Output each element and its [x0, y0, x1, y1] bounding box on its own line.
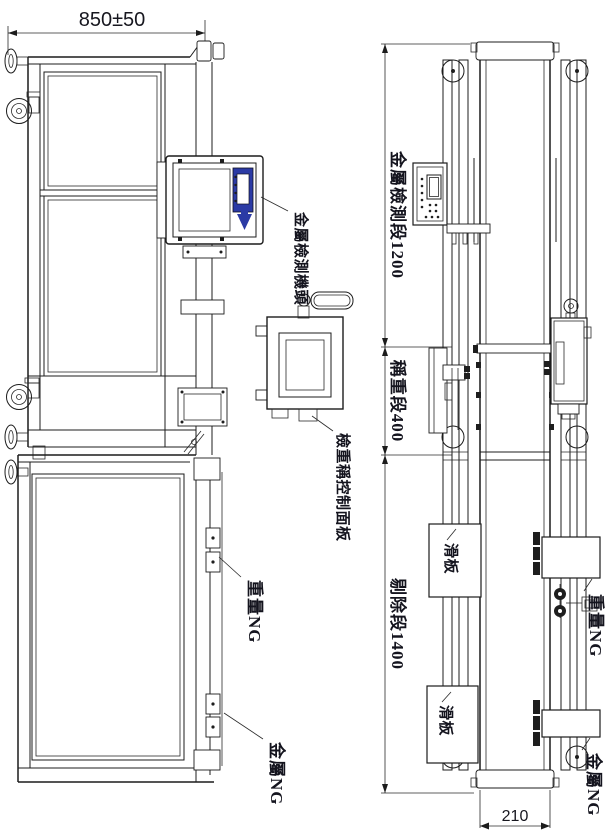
detector-display-screen [237, 174, 249, 204]
leader-line [224, 713, 263, 739]
section-label-metal-detection: 金屬檢測段1200 [388, 150, 408, 279]
slide-plate-label: 滑板 [442, 543, 460, 575]
metal-detector-plan [413, 158, 556, 244]
label-detector-head: 金屬檢測機頭 [261, 197, 310, 306]
drawing-canvas: 850±50 [0, 0, 605, 830]
leader-line [261, 197, 288, 211]
panel-foot [272, 409, 288, 418]
slide-plate-label: 滑板 [437, 705, 455, 737]
caster-wheel [7, 92, 41, 124]
metal-detector-head [157, 156, 263, 244]
side-view: 850±50 [5, 9, 353, 806]
weight-ng-chute [542, 537, 600, 578]
label-control-panel: 檢重稱控制面板 [312, 416, 352, 542]
section-dimensions: 金屬檢測段1200 稱重段400 剔除段1400 [381, 44, 474, 793]
detector-cross-bar [447, 224, 490, 233]
metal-ng-label: 金屬NG [267, 741, 287, 806]
slide-plate-lower: 滑板 [427, 686, 478, 763]
control-panel-label: 檢重稱控制面板 [334, 433, 352, 542]
dim-arrow-right [196, 30, 205, 36]
reject-frame-opening [32, 474, 184, 760]
control-panel-plan [551, 299, 591, 419]
slide-plate-upper: 滑板 [429, 524, 481, 597]
metal-ng-bracket [206, 694, 220, 737]
belt-seam [477, 344, 553, 353]
leveling-foot [5, 460, 28, 484]
panel-foot [299, 409, 317, 421]
weight-ng-label: 重量NG [245, 580, 265, 644]
leader-line [312, 416, 333, 431]
conveyor-belt [471, 42, 559, 788]
section-label-rejection: 剔除段1400 [388, 577, 408, 670]
belt-width-dimension: 210 [480, 790, 550, 830]
support-post [33, 446, 45, 459]
frame-opening-upper [44, 72, 161, 190]
label-weight-ng-plan: 重量NG [584, 579, 605, 658]
checkweigher-control-panel [256, 292, 353, 421]
reject-conveyor [18, 455, 222, 782]
frame-opening-lower [44, 196, 161, 376]
casters-and-feet [5, 49, 45, 484]
belt-end-cap [476, 770, 554, 788]
operator-panel [413, 163, 447, 225]
dim-arrow-left [8, 30, 17, 36]
dim-text-850: 850±50 [79, 9, 146, 31]
section-label-weighing: 稱重段400 [388, 360, 408, 443]
metal-ng-label: 金屬NG [584, 752, 604, 817]
label-metal-ng-side: 金屬NG [224, 713, 287, 806]
weighing-fixtures-plan [429, 299, 591, 433]
leveling-foot [5, 425, 28, 449]
monitor-bracket [157, 162, 166, 238]
display-arrow-stem [241, 205, 248, 214]
side-rails [443, 60, 586, 770]
detector-head-label: 金屬檢測機頭 [292, 211, 310, 306]
belt-end-cap [476, 42, 554, 60]
detector-column [178, 243, 227, 455]
metal-ng-chute [542, 710, 600, 737]
weight-ng-bracket [206, 528, 220, 572]
caster-wheel [7, 378, 40, 410]
label-weight-ng-side: 重量NG [219, 557, 265, 644]
weigh-frame-left [429, 348, 447, 433]
weight-ng-label: 重量NG [586, 594, 605, 658]
leveling-foot [5, 49, 28, 73]
leader-line [584, 579, 592, 591]
technical-drawing: 850±50 [0, 0, 605, 830]
plan-view: 金屬檢測段1200 稱重段400 剔除段1400 [381, 42, 605, 830]
dim-text-210: 210 [502, 808, 529, 825]
top-width-dimension: 850±50 [8, 9, 205, 55]
panel-body [267, 317, 343, 409]
